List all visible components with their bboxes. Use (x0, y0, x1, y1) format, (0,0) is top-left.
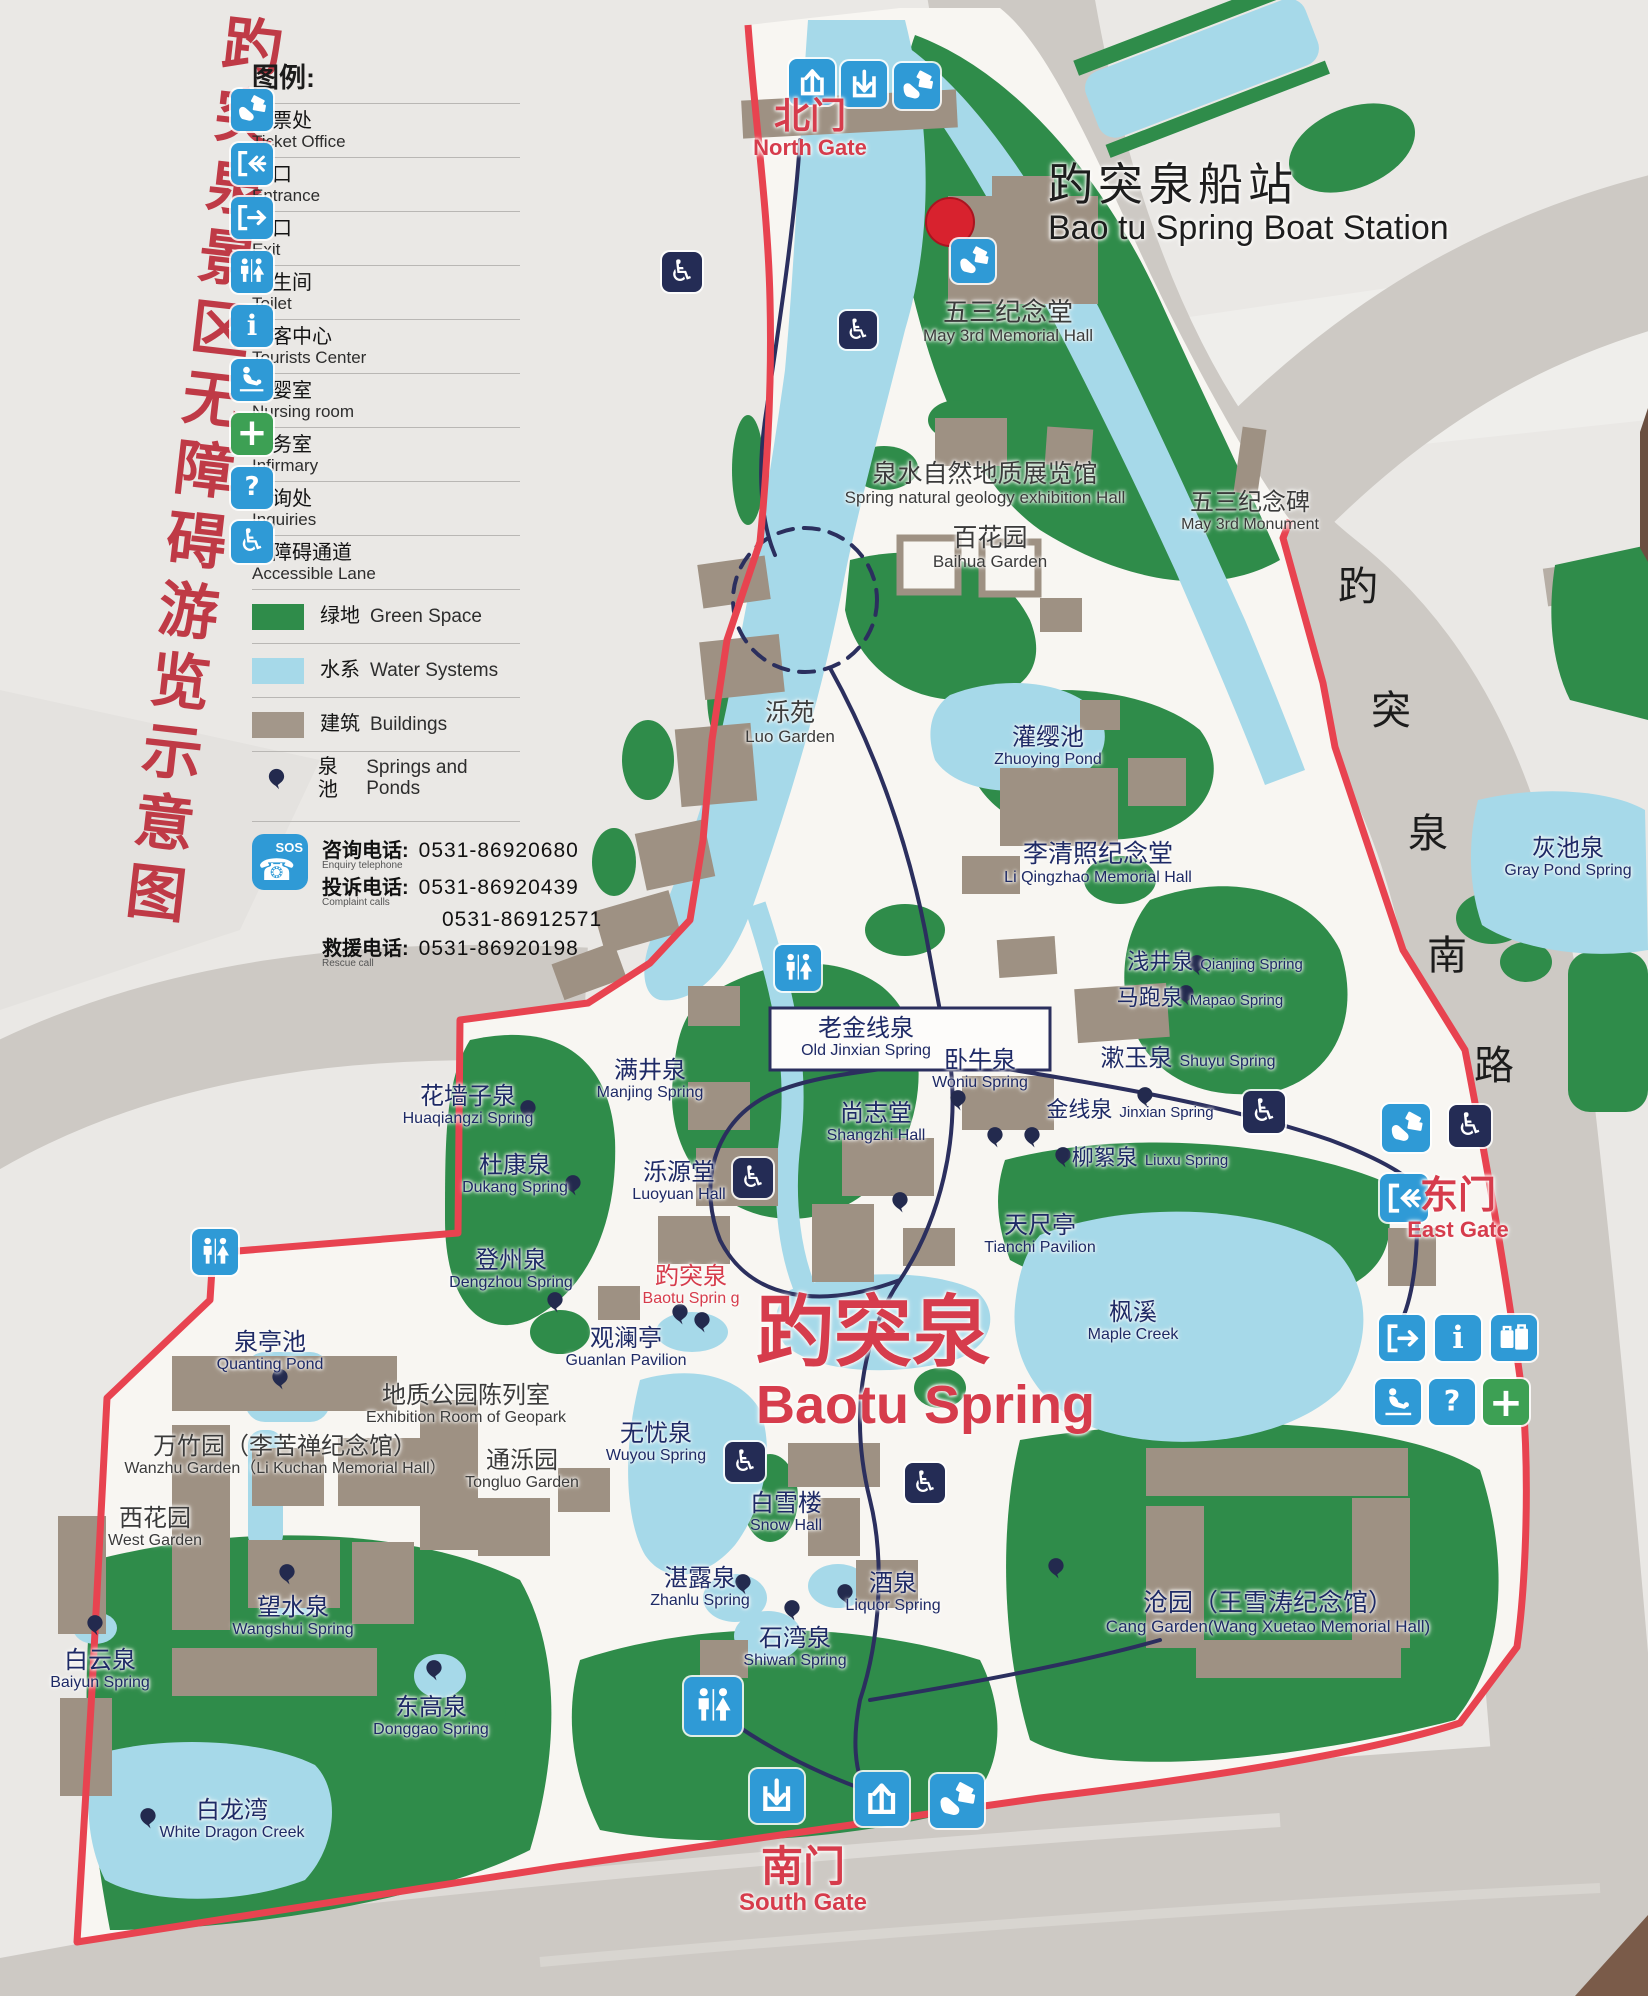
poster-title-char: 图 (123, 861, 189, 927)
liuxu-spring-label: 柳絮泉Liuxu Spring (1072, 1146, 1228, 1170)
phone-row: 救援电话:Rescue call0531-86920198 (322, 932, 602, 969)
cross-icon: + (1483, 1379, 1529, 1425)
legend-item-ticket-office: 售票处Ticket Office (252, 103, 520, 157)
legend-item-springs-and-ponds: 泉池Springs and Ponds (252, 751, 520, 805)
spring-marker (279, 1563, 296, 1585)
legend-item-tourists-center: i游客中心Tourists Center (252, 319, 520, 373)
shiwan-spring-label: 石湾泉Shiwan Spring (743, 1626, 846, 1670)
ticket-icon (1382, 1104, 1430, 1152)
wheelchair-icon: ♿ (839, 311, 877, 349)
liqingzhao-hall-label: 李清照纪念堂Li Qingzhao Memorial Hall (1004, 841, 1192, 886)
ticket-icon (930, 1774, 984, 1828)
question-icon: ? (231, 467, 273, 509)
poster-title-char: 游 (155, 579, 221, 645)
legend-item-accessible-lane: ♿无障碍通道Accessible Lane (252, 535, 520, 589)
east-gate-label: 东门East Gate (1407, 1176, 1509, 1242)
boat-station-label: 趵突泉船站Bao tu Spring Boat Station (1048, 160, 1449, 247)
poster-title-char: 障 (171, 438, 237, 504)
baihua-garden-label: 百花园Baihua Garden (933, 525, 1047, 571)
poster-title-char: 碍 (163, 508, 229, 574)
nursing-icon (231, 359, 273, 401)
shuyu-spring-label: 漱玉泉Shuyu Spring (1100, 1046, 1275, 1072)
dukang-spring-label: 杜康泉Dukang Spring (462, 1153, 568, 1197)
woniu-spring-label: 卧牛泉Woniu Spring (932, 1048, 1028, 1092)
ticket-icon (951, 239, 995, 283)
legend-item-toilet: 卫生间Toilet (252, 265, 520, 319)
luoyuan-hall-label: 泺源堂Luoyuan Hall (632, 1160, 725, 1204)
legend-zh: 绿地 (320, 605, 360, 627)
legend-item-inquiries: ?咨询处Inquiries (252, 481, 520, 535)
west-garden-label: 西花园West Garden (108, 1506, 202, 1550)
legend-title: 图例: (252, 56, 520, 103)
legend-item-entrance: 入口Entrance (252, 157, 520, 211)
mapao-spring-label: 马跑泉Mapao Spring (1117, 986, 1283, 1010)
legend-zh: 泉池 (318, 756, 356, 801)
road-name-char: 趵 (1338, 554, 1378, 612)
zhuoying-pond-label: 灌缨池Zhuoying Pond (994, 725, 1102, 769)
legend-en: Green Space (370, 606, 482, 627)
cross-icon: + (231, 413, 273, 455)
old-jinxian-spring-label: 老金线泉Old Jinxian Spring (801, 1016, 931, 1060)
legend-item-water-systems: 水系Water Systems (252, 643, 520, 697)
north-gate-label: 北门North Gate (753, 96, 867, 160)
legend-en: Springs and Ponds (366, 757, 520, 800)
donggao-spring-label: 东高泉Donggao Spring (373, 1695, 489, 1739)
cang-garden-label: 沧园（王雪涛纪念馆）Cang Garden(Wang Xuetao Memori… (1106, 1590, 1430, 1636)
road-name-char: 路 (1474, 1033, 1514, 1091)
wheelchair-icon: ♿ (905, 1463, 945, 1503)
door-out-icon (231, 197, 273, 239)
dengzhou-spring-label: 登州泉Dengzhou Spring (449, 1248, 573, 1292)
geology-hall-label: 泉水自然地质展览馆Spring natural geology exhibiti… (845, 461, 1126, 507)
phone-number: 0531-86920680 (419, 839, 579, 863)
wheelchair-blue-icon: ♿ (231, 521, 273, 563)
maple-creek-label: 枫溪Maple Creek (1088, 1300, 1179, 1344)
green-swatch (252, 604, 304, 630)
phone-number: 0531-86920439 (419, 876, 579, 900)
spring-marker (426, 1659, 443, 1681)
qianjing-spring-label: 浅井泉Qianjing Spring (1127, 950, 1303, 974)
poster-title-char: 意 (131, 791, 197, 857)
snow-hall-label: 白雪楼Snow Hall (750, 1491, 822, 1535)
south-gate-label: 南门South Gate (739, 1844, 867, 1917)
luggage-icon (1491, 1315, 1537, 1361)
enter-down-icon (750, 1769, 804, 1823)
spring-marker (1024, 1126, 1041, 1148)
phone-icon: ☎ (258, 853, 295, 888)
huaqiangzi-spring-label: 花墙子泉Huaqiangzi Spring (403, 1084, 534, 1128)
legend-panel: 图例: 售票处Ticket Office入口Entrance出口Exit卫生间T… (252, 56, 520, 969)
guanlan-pavilion-label: 观澜亭Guanlan Pavilion (566, 1326, 687, 1370)
wangshui-spring-label: 望水泉Wangshui Spring (232, 1595, 353, 1639)
nursing-icon (1375, 1379, 1421, 1425)
liquor-spring-label: 酒泉Liquor Spring (845, 1571, 940, 1615)
spring-marker (892, 1191, 909, 1213)
wheelchair-icon: ♿ (725, 1442, 765, 1482)
building-swatch (252, 712, 304, 738)
spring-marker (987, 1126, 1004, 1148)
luo-garden-label: 泺苑Luo Garden (745, 700, 835, 746)
spring-marker (140, 1807, 157, 1829)
phone-row: 咨询电话:Enquiry telephone0531-86920680 (322, 834, 602, 871)
white-dragon-creek-label: 白龙湾White Dragon Creek (160, 1798, 305, 1842)
legend-item-exit: 出口Exit (252, 211, 520, 265)
wheelchair-icon: ♿ (1449, 1105, 1491, 1147)
geopark-room-label: 地质公园陈列室Exhibition Room of Geopark (366, 1383, 566, 1427)
spring-marker (547, 1291, 564, 1313)
toilet-icon (231, 251, 273, 293)
door-out-icon (1379, 1315, 1425, 1361)
legend-item-nursing-room: 母婴室Nursing room (252, 373, 520, 427)
info-icon: i (231, 305, 273, 347)
shangzhi-hall-label: 尚志堂Shangzhi Hall (827, 1101, 926, 1145)
exit-up-icon (855, 1772, 909, 1826)
zhanlu-spring-label: 湛露泉Zhanlu Spring (650, 1566, 750, 1610)
road-name-char: 南 (1427, 923, 1467, 981)
ticket-icon (231, 89, 273, 131)
quanting-pond-label: 泉亭池Quanting Pond (217, 1330, 324, 1374)
legend-en: Buildings (370, 714, 447, 735)
legend-item-buildings: 建筑Buildings (252, 697, 520, 751)
legend-en: Accessible Lane (252, 564, 376, 583)
sos-phone-icon: ☎ SOS (252, 834, 308, 890)
road-name-char: 突 (1371, 678, 1411, 736)
tongluo-garden-label: 通泺园Tongluo Garden (465, 1448, 579, 1492)
phone-row: 0531-86912571 (322, 908, 602, 932)
legend-item-green-space: 绿地Green Space (252, 589, 520, 643)
water-swatch (252, 658, 304, 684)
spring-marker (950, 1089, 967, 1111)
toilet-icon (775, 945, 821, 991)
spring-marker-icon (252, 768, 302, 790)
wheelchair-icon: ♿ (1243, 1091, 1285, 1133)
phone-number: 0531-86920198 (419, 937, 579, 961)
jinxian-spring-label: 金线泉Jinxian Spring (1046, 1098, 1213, 1122)
spring-marker (1048, 1557, 1065, 1579)
wheelchair-icon: ♿ (662, 252, 702, 292)
legend-zh: 建筑 (320, 713, 360, 735)
baiyun-spring-label: 白云泉Baiyun Spring (50, 1648, 150, 1692)
gray-pond-spring-label: 灰池泉Gray Pond Spring (1504, 836, 1631, 880)
door-in-icon (231, 143, 273, 185)
ticket-icon (894, 63, 940, 109)
baotu-spring-title: 趵突泉Baotu Spring (756, 1290, 1095, 1435)
map-poster-photo: 趵突泉景区无障碍游览示意图 图例: 售票处Ticket Office入口Entr… (0, 0, 1648, 1996)
legend-item-infirmary: +医务室Infirmary (252, 427, 520, 481)
info-icon: i (1435, 1315, 1481, 1361)
spring-marker (87, 1614, 104, 1636)
may3rd-monument-label: 五三纪念碑May 3rd Monument (1181, 490, 1319, 534)
legend-zh: 水系 (320, 659, 360, 681)
wanzhu-garden-label: 万竹园（李苦禅纪念馆）Wanzhu Garden（Li Kuchan Memor… (124, 1434, 445, 1478)
phone-number: 0531-86912571 (442, 908, 602, 932)
poster-title-char: 示 (139, 720, 205, 786)
wheelchair-icon: ♿ (733, 1158, 773, 1198)
baotu-spring-small-label: 趵突泉Baotu Sprin g (643, 1264, 740, 1308)
legend-phones: ☎ SOS 咨询电话:Enquiry telephone0531-8692068… (252, 821, 520, 969)
phone-row: 投诉电话:Complaint calls0531-86920439 (322, 871, 602, 908)
spring-marker (1055, 1146, 1072, 1168)
wuyou-spring-label: 无忧泉Wuyou Spring (606, 1421, 706, 1465)
road-name-char: 泉 (1408, 801, 1448, 859)
question-icon: ? (1429, 1379, 1475, 1425)
toilet-icon (192, 1229, 238, 1275)
spring-marker (694, 1311, 711, 1333)
poster-title-char: 览 (147, 649, 213, 715)
may3rd-hall-label: 五三纪念堂May 3rd Memorial Hall (923, 298, 1093, 345)
legend-en: Water Systems (370, 660, 498, 681)
toilet-icon (684, 1677, 742, 1735)
tianchi-pavilion-label: 天尺亭Tianchi Pavilion (984, 1213, 1095, 1257)
spring-marker (784, 1599, 801, 1621)
manjing-spring-label: 满井泉Manjing Spring (597, 1058, 704, 1102)
